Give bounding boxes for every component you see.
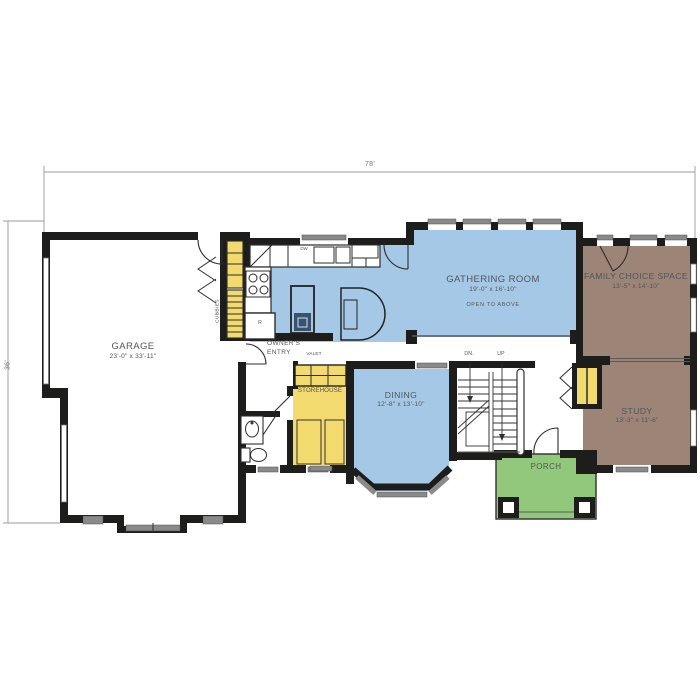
kitchen-sink — [314, 247, 334, 263]
refrigerator — [245, 313, 275, 339]
owners-entry-door — [246, 344, 266, 364]
family-choice-floor — [583, 246, 690, 362]
kitchen-sink — [336, 247, 350, 263]
wall-vent — [203, 516, 223, 524]
gathering-room-floor — [412, 225, 576, 337]
stair-direction-arrows — [467, 363, 505, 441]
stairs — [458, 363, 524, 455]
garage-bifold-doors — [198, 257, 216, 303]
front-door — [534, 428, 558, 454]
powder-room-fixtures — [241, 416, 267, 462]
storehouse-door — [273, 396, 290, 413]
stair-rail — [517, 369, 524, 455]
stair-treads — [458, 372, 517, 452]
toilet-tank — [241, 448, 250, 462]
wall-vent — [83, 516, 103, 524]
toilet-bowl — [251, 449, 267, 462]
dining-floor — [354, 369, 449, 491]
butler-counter — [352, 245, 378, 258]
storehouse-floor — [293, 386, 346, 469]
island-sink — [294, 313, 311, 331]
floor-plan-drawing — [0, 0, 700, 700]
closet-bifold-doors — [560, 367, 572, 409]
floor-plan: 78' 36' GARAGE 23'-0" x 33'-11" GATHERIN… — [0, 0, 700, 700]
bay-window — [377, 492, 427, 497]
